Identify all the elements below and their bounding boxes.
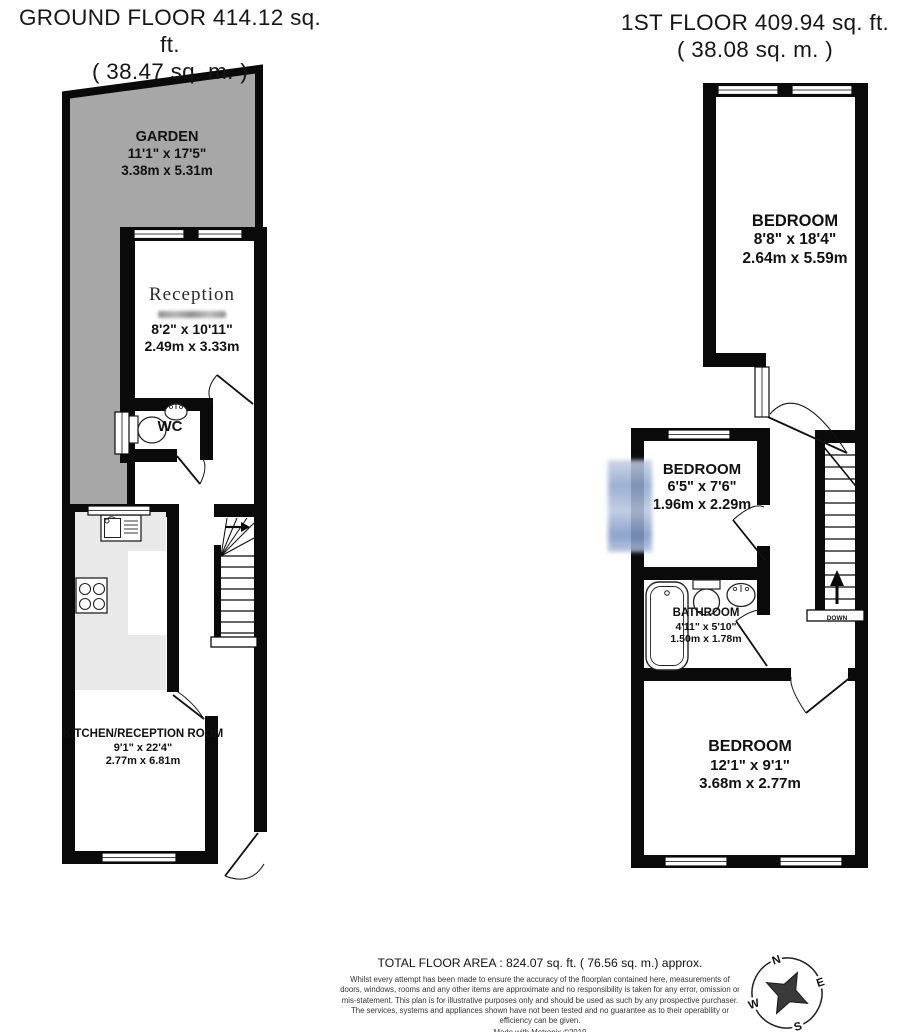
first-doors [733, 403, 852, 713]
door-arc [791, 676, 852, 713]
window [718, 86, 778, 95]
kitchen-sink-icon [101, 515, 141, 541]
floorplan-page: DOWN [0, 0, 912, 1032]
total-floor-area: TOTAL FLOOR AREA : 824.07 sq. ft. ( 76.5… [340, 956, 740, 970]
garden-label: GARDEN 11'1" x 17'5" 3.38m x 5.31m [67, 129, 267, 179]
door-arc [173, 689, 204, 719]
door-arc [177, 456, 205, 484]
compass-rose: N E S W [736, 943, 837, 1032]
first-floor-subtitle: ( 38.08 sq. m. ) [598, 36, 912, 63]
bedroom-1-label: BEDROOM 8'8" x 18'4" 2.64m x 5.59m [695, 211, 895, 269]
door-arc [209, 375, 253, 404]
ground-floor-title: GROUND FLOOR 414.12 sq. ft. ( 38.47 sq. … [10, 4, 330, 85]
disclaimer-text: Whilst every attempt has been made to en… [340, 975, 740, 1026]
compass-west-label: W [747, 997, 761, 1012]
bathroom-label: BATHROOM 4'11" x 5'10" 1.50m x 1.78m [636, 607, 776, 646]
reception-label: Reception 8'2" x 10'11" 2.49m x 3.33m [112, 284, 272, 354]
window [102, 853, 176, 862]
door-arc [768, 403, 847, 453]
compass-south-label: S [793, 1020, 804, 1032]
window [115, 412, 129, 454]
sink-icon [727, 584, 755, 607]
window [668, 430, 730, 439]
compass-needle [756, 962, 818, 1024]
kitchen-label: KITCHEN/RECEPTION ROOM 9'1" x 22'4" 2.77… [62, 728, 224, 768]
window [198, 230, 242, 239]
stove-icon [76, 578, 107, 613]
blurred-text [158, 311, 226, 318]
credit-text: Made with Metropix ©2019 [340, 1028, 740, 1032]
compass-east-label: E [815, 976, 826, 990]
window [792, 86, 852, 95]
wc-label: WC [142, 418, 198, 436]
window [755, 367, 769, 417]
bedroom-3-label: BEDROOM 12'1" x 9'1" 3.68m x 2.77m [650, 737, 850, 793]
ground-floor-title-line: GROUND FLOOR 414.12 sq. ft. [10, 4, 330, 58]
door-arc [225, 833, 264, 879]
footer: TOTAL FLOOR AREA : 824.07 sq. ft. ( 76.5… [340, 956, 740, 1032]
first-floor-title-line: 1ST FLOOR 409.94 sq. ft. [598, 9, 912, 36]
ground-floor-subtitle: ( 38.47 sq. m. ) [10, 58, 330, 85]
first-floor-title: 1ST FLOOR 409.94 sq. ft. ( 38.08 sq. m. … [598, 9, 912, 63]
stairs-down-label: DOWN [827, 615, 848, 622]
window [88, 506, 150, 515]
window [665, 857, 727, 866]
window [780, 857, 842, 866]
window [134, 230, 184, 239]
blurred-object [608, 460, 652, 552]
compass-north-label: N [771, 954, 783, 968]
